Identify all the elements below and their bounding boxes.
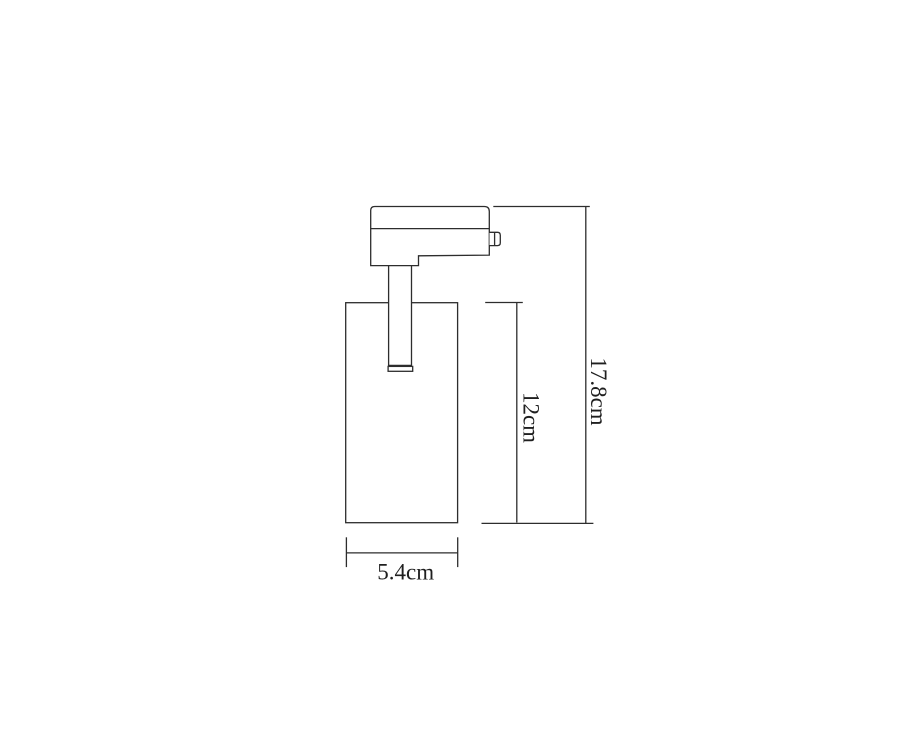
svg-text:12cm: 12cm	[518, 392, 543, 443]
svg-text:17.8cm: 17.8cm	[586, 357, 611, 425]
svg-text:5.4cm: 5.4cm	[377, 560, 434, 585]
